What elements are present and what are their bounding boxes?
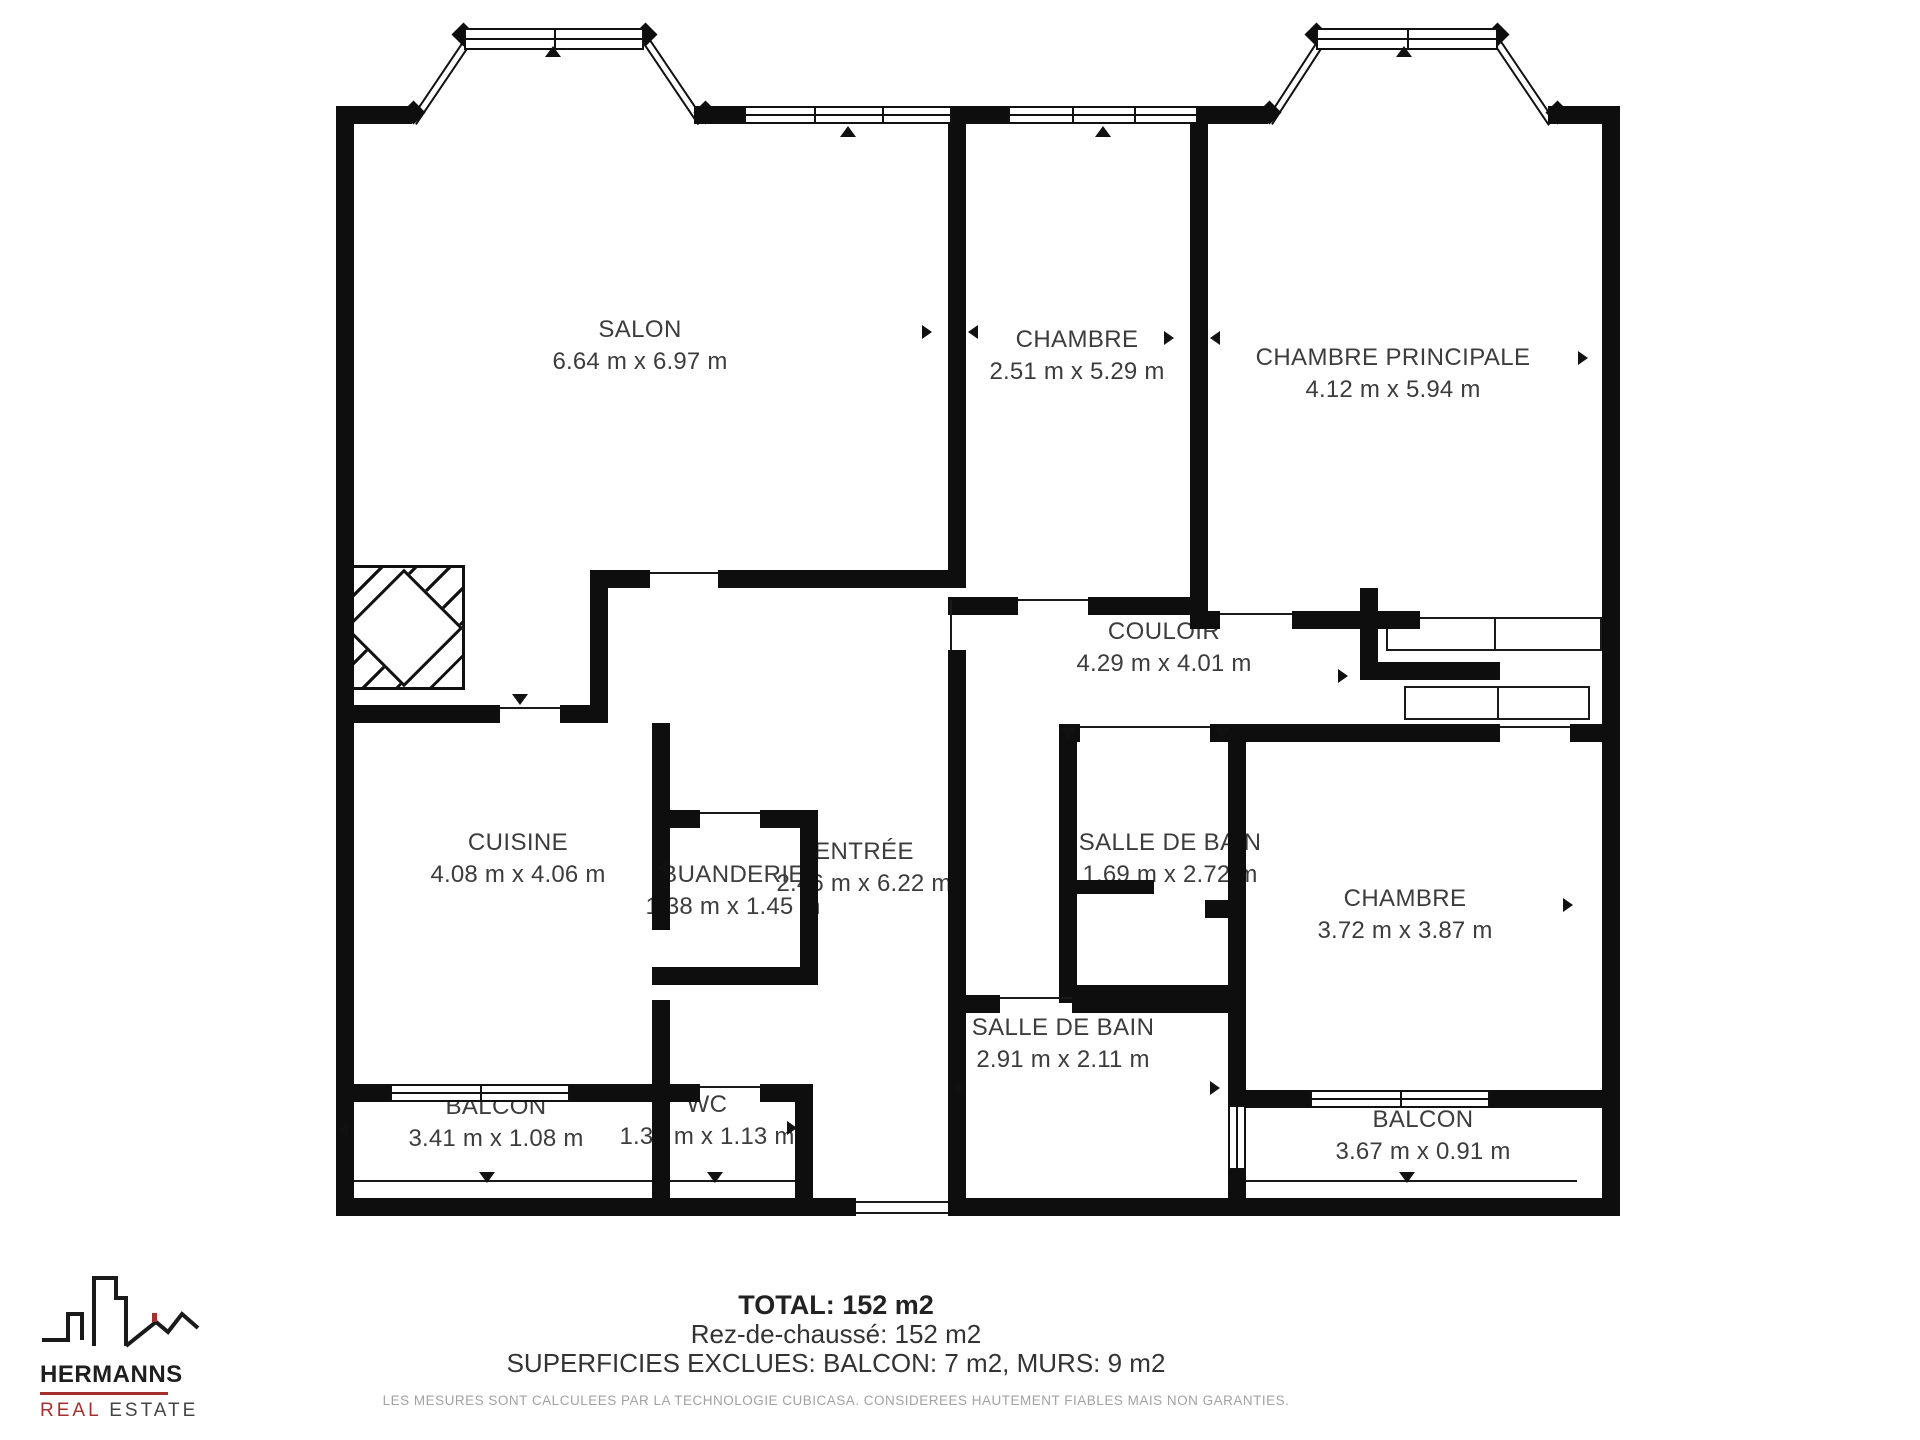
logo-rule xyxy=(40,1392,168,1395)
window xyxy=(1310,1090,1490,1108)
door-marker xyxy=(1095,126,1111,137)
logo-tagline-estate: ESTATE xyxy=(109,1400,198,1421)
measurement-disclaimer: LES MESURES SONT CALCULEES PAR LA TECHNO… xyxy=(336,1393,1336,1408)
room-name: BALCON xyxy=(1213,1104,1633,1136)
area-summary: TOTAL: 152 m2 Rez-de-chaussé: 152 m2 SUP… xyxy=(336,1291,1336,1378)
wall-segment xyxy=(1210,724,1500,742)
window-mullion xyxy=(1072,108,1074,122)
agency-logo: HERMANNS REAL ESTATE xyxy=(40,1252,230,1422)
window-glazing xyxy=(746,114,950,116)
room-dims: 6.64 m x 6.97 m xyxy=(430,346,850,378)
total-area: TOTAL: 152 m2 xyxy=(336,1291,1336,1320)
window-glazing xyxy=(1236,1107,1238,1168)
door-marker xyxy=(922,325,932,339)
wall-segment xyxy=(1072,995,1246,1013)
logo-name: HERMANNS xyxy=(40,1361,230,1389)
room-name: SALLE DE BAIN xyxy=(853,1012,1273,1044)
threshold-line xyxy=(856,1212,948,1214)
door-marker xyxy=(338,1123,348,1137)
door-marker xyxy=(1164,331,1174,345)
room-dims: 4.29 m x 4.01 m xyxy=(954,648,1374,680)
logo-tagline-real: REAL xyxy=(40,1400,101,1421)
threshold-line xyxy=(1080,726,1210,728)
door-marker xyxy=(968,325,978,339)
threshold-line xyxy=(700,1086,760,1088)
room-dims: 4.12 m x 5.94 m xyxy=(1183,374,1603,406)
wall-segment xyxy=(652,967,818,985)
window-mullion xyxy=(882,108,884,122)
logo-tagline: REAL ESTATE xyxy=(40,1400,230,1422)
room-label-salle-de-bain-haut: SALLE DE BAIN 1.69 m x 2.72 m xyxy=(960,827,1380,891)
wall-segment xyxy=(948,124,966,570)
wall-segment xyxy=(948,650,966,1198)
threshold-line xyxy=(950,600,952,650)
door-marker xyxy=(1060,728,1076,739)
door-marker xyxy=(1396,46,1412,57)
closet-divider xyxy=(1497,688,1499,718)
wall-segment xyxy=(1190,611,1220,629)
threshold-line xyxy=(1220,613,1292,615)
wall-segment xyxy=(590,570,608,723)
door-marker xyxy=(1210,1081,1220,1095)
threshold-line xyxy=(500,707,560,709)
door-marker xyxy=(1338,669,1348,683)
threshold-line xyxy=(856,1201,948,1203)
door-marker xyxy=(1578,351,1588,365)
threshold-line xyxy=(1500,726,1570,728)
wall-segment xyxy=(652,810,700,828)
room-label-salon: SALON 6.64 m x 6.97 m xyxy=(430,314,850,378)
wall-segment xyxy=(1059,724,1077,1003)
wall-segment xyxy=(336,106,354,1216)
closet xyxy=(1404,686,1590,720)
wall-segment xyxy=(1360,662,1500,680)
wall-segment xyxy=(948,597,1018,615)
threshold-line xyxy=(354,1180,652,1182)
door-marker xyxy=(952,1081,962,1095)
window-mullion xyxy=(480,1086,482,1100)
threshold-line xyxy=(1018,599,1088,601)
room-label-balcon-droit: BALCON 3.67 m x 0.91 m xyxy=(1213,1104,1633,1168)
window-mullion xyxy=(1134,108,1136,122)
door-marker xyxy=(479,1172,495,1183)
wall-segment xyxy=(336,705,500,723)
door-marker xyxy=(545,46,561,57)
fireplace-diamond xyxy=(344,568,463,687)
wall-segment xyxy=(1059,880,1154,894)
door-marker xyxy=(1563,898,1573,912)
window xyxy=(1228,1105,1246,1170)
wall-segment xyxy=(336,1198,856,1216)
room-name: CHAMBRE PRINCIPALE xyxy=(1183,342,1603,374)
wall-segment xyxy=(718,570,966,588)
window-mullion xyxy=(1400,1092,1402,1106)
closet-divider xyxy=(1494,619,1496,649)
door-marker xyxy=(707,1172,723,1183)
door-marker xyxy=(1214,728,1230,739)
wall-segment xyxy=(1602,106,1620,1216)
window xyxy=(390,1084,570,1102)
wall-segment xyxy=(560,705,608,723)
door-marker xyxy=(512,694,528,705)
wall-segment xyxy=(1205,900,1238,918)
wall-segment xyxy=(795,1084,813,1198)
door-marker xyxy=(787,1121,797,1135)
wall-segment xyxy=(1228,724,1246,1003)
room-label-salle-de-bain-bas: SALLE DE BAIN 2.91 m x 2.11 m xyxy=(853,1012,1273,1076)
fireplace-hatch xyxy=(342,565,465,690)
wall-segment xyxy=(948,1198,1620,1216)
floor-area: Rez-de-chaussé: 152 m2 xyxy=(336,1320,1336,1349)
door-marker xyxy=(1210,331,1220,345)
room-name: SALON xyxy=(430,314,850,346)
room-name: CHAMBRE xyxy=(1195,883,1615,915)
threshold-line xyxy=(650,572,718,574)
room-dims: 3.72 m x 3.87 m xyxy=(1195,915,1615,947)
floorplan-page: SALON 6.64 m x 6.97 m CHAMBRE 2.51 m x 5… xyxy=(0,0,1920,1440)
threshold-line xyxy=(670,1180,795,1182)
wall-segment xyxy=(1292,611,1420,629)
door-marker xyxy=(840,126,856,137)
room-dims: 2.91 m x 2.11 m xyxy=(853,1044,1273,1076)
door-marker xyxy=(1399,1172,1415,1183)
room-label-chambre-droite: CHAMBRE 3.72 m x 3.87 m xyxy=(1195,883,1615,947)
threshold-line xyxy=(700,812,760,814)
window xyxy=(744,106,952,124)
door-marker xyxy=(656,861,666,875)
wall-segment xyxy=(800,810,818,985)
window-glazing xyxy=(1010,114,1196,116)
wall-segment xyxy=(948,995,1000,1013)
room-dims: 3.67 m x 0.91 m xyxy=(1213,1136,1633,1168)
room-name: SALLE DE BAIN xyxy=(960,827,1380,859)
wall-segment xyxy=(1190,124,1208,597)
window-mullion xyxy=(814,108,816,122)
room-label-chambre-principale: CHAMBRE PRINCIPALE 4.12 m x 5.94 m xyxy=(1183,342,1603,406)
skyline-logo-icon xyxy=(40,1252,200,1352)
wall-segment xyxy=(952,106,1008,124)
wall-segment xyxy=(1570,724,1602,742)
excluded-areas: SUPERFICIES EXCLUES: BALCON: 7 m2, MURS:… xyxy=(336,1349,1336,1378)
wall-segment xyxy=(1198,106,1268,124)
threshold-line xyxy=(1000,997,1072,999)
window xyxy=(1008,106,1198,124)
